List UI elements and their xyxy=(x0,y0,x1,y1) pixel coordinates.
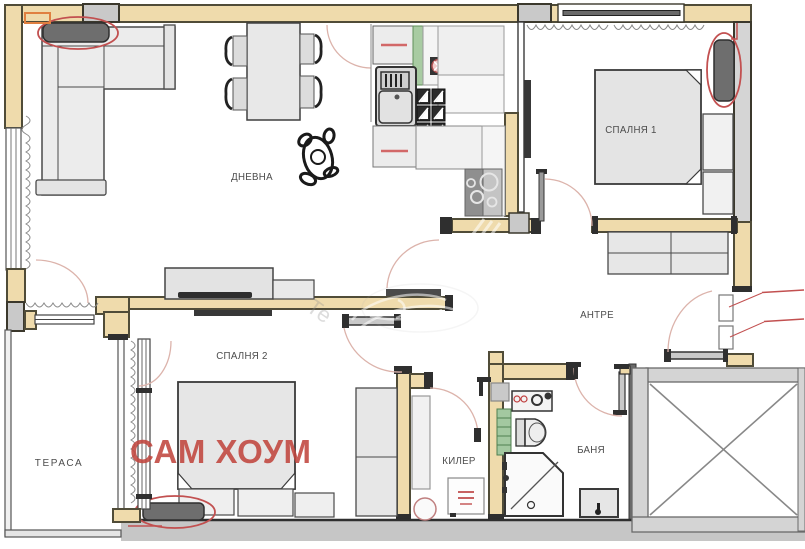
svg-text:ДНЕВНА: ДНЕВНА xyxy=(231,172,273,183)
svg-text:ТЕРАСА: ТЕРАСА xyxy=(35,458,84,469)
svg-text:КИЛЕР: КИЛЕР xyxy=(442,456,475,467)
svg-text:БАНЯ: БАНЯ xyxy=(577,445,605,456)
svg-text:АНТРЕ: АНТРЕ xyxy=(580,310,614,321)
svg-text:СПАЛНЯ 1: СПАЛНЯ 1 xyxy=(605,125,656,136)
svg-text:САМ ХОУМ: САМ ХОУМ xyxy=(130,433,312,470)
svg-text:СПАЛНЯ 2: СПАЛНЯ 2 xyxy=(216,351,267,362)
